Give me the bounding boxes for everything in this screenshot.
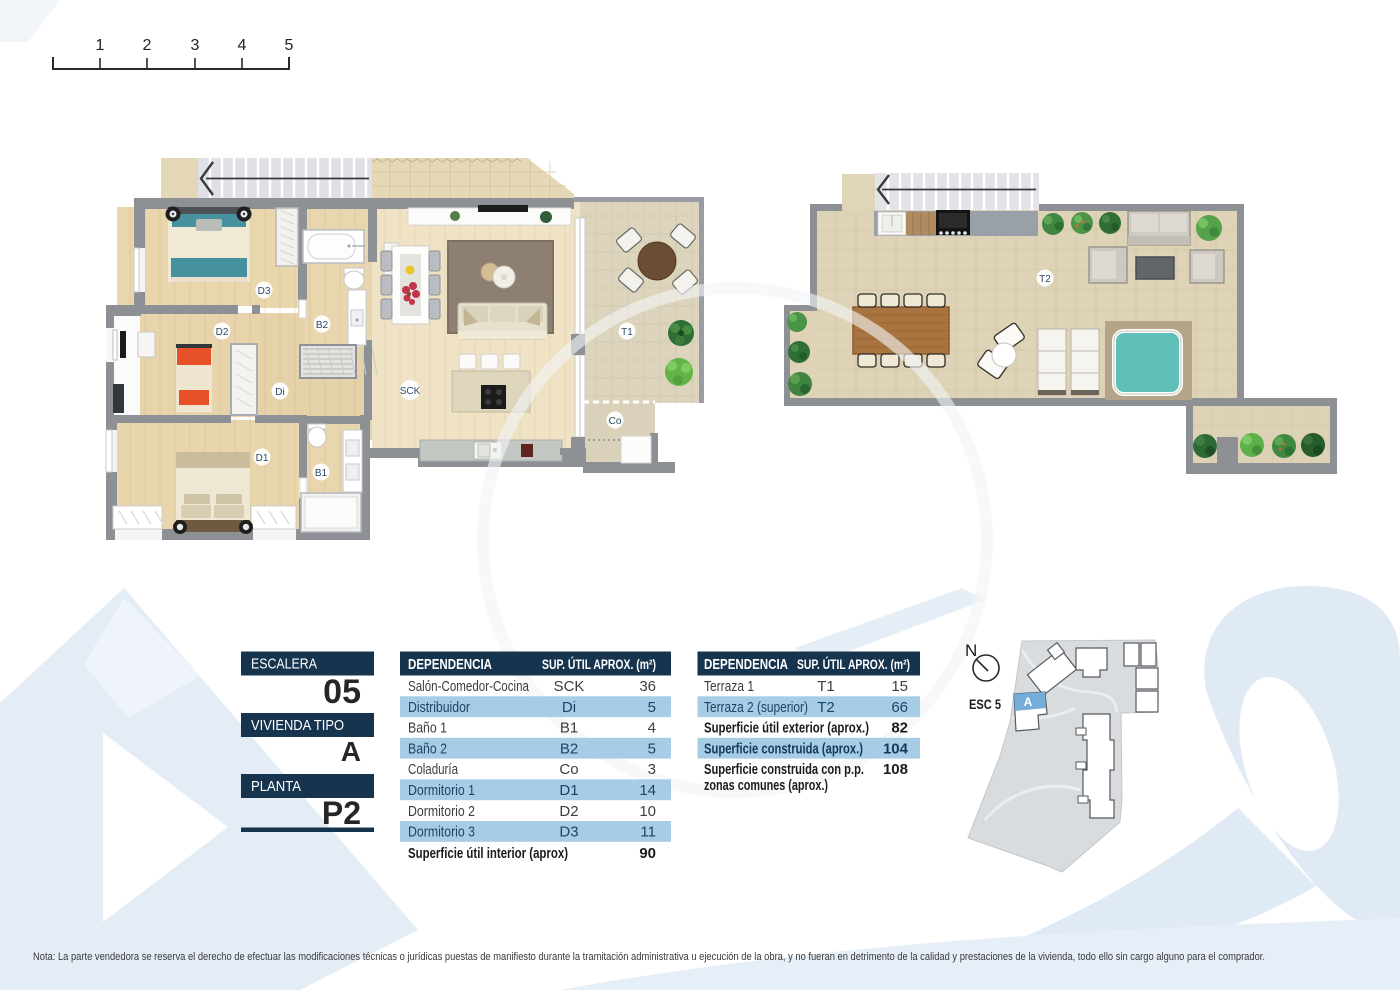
- svg-text:3: 3: [191, 37, 200, 54]
- svg-text:Terraza 2 (superior): Terraza 2 (superior): [704, 699, 808, 716]
- svg-text:4: 4: [648, 720, 656, 737]
- svg-text:Baño 1: Baño 1: [408, 720, 447, 737]
- svg-text:zonas comunes (aprox.): zonas comunes (aprox.): [704, 777, 828, 794]
- svg-text:Baño 2: Baño 2: [408, 741, 447, 758]
- svg-text:SUP. ÚTIL APROX. (m²): SUP. ÚTIL APROX. (m²): [797, 657, 910, 672]
- svg-text:5: 5: [648, 699, 656, 716]
- svg-text:Terraza 1: Terraza 1: [704, 678, 754, 695]
- svg-text:108: 108: [883, 761, 908, 778]
- svg-text:A: A: [341, 736, 361, 767]
- svg-text:N: N: [965, 641, 977, 660]
- svg-text:A: A: [1024, 695, 1033, 709]
- svg-text:36: 36: [639, 678, 656, 695]
- svg-text:Di: Di: [275, 387, 284, 398]
- svg-text:D1: D1: [559, 782, 578, 799]
- svg-text:Salón-Comedor-Cocina: Salón-Comedor-Cocina: [408, 678, 529, 695]
- svg-text:T2: T2: [817, 699, 835, 716]
- svg-text:4: 4: [238, 37, 247, 54]
- svg-text:Superficie útil interior (apro: Superficie útil interior (aprox): [408, 845, 568, 862]
- svg-text:5: 5: [285, 37, 294, 54]
- svg-text:Coladuría: Coladuría: [408, 761, 458, 778]
- svg-text:2: 2: [143, 37, 152, 54]
- svg-text:T1: T1: [817, 678, 835, 695]
- svg-text:B1: B1: [560, 720, 578, 737]
- svg-text:B2: B2: [316, 320, 329, 331]
- svg-text:05: 05: [323, 673, 361, 711]
- svg-text:90: 90: [639, 845, 656, 862]
- svg-text:PLANTA: PLANTA: [251, 779, 301, 795]
- svg-text:11: 11: [640, 824, 656, 841]
- svg-text:D3: D3: [559, 824, 578, 841]
- svg-text:Dormitorio 3: Dormitorio 3: [408, 824, 475, 841]
- svg-text:5: 5: [648, 741, 656, 758]
- svg-text:3: 3: [648, 761, 656, 778]
- svg-text:SCK: SCK: [400, 386, 421, 397]
- svg-text:15: 15: [891, 678, 908, 695]
- svg-text:T2: T2: [1039, 274, 1051, 285]
- svg-text:Distribuidor: Distribuidor: [408, 699, 470, 716]
- svg-text:1: 1: [96, 37, 105, 54]
- svg-text:D3: D3: [258, 286, 271, 297]
- svg-text:B2: B2: [560, 741, 578, 758]
- svg-text:DEPENDENCIA: DEPENDENCIA: [408, 657, 492, 673]
- svg-text:Co: Co: [609, 416, 622, 427]
- svg-text:P2: P2: [322, 795, 361, 831]
- svg-text:14: 14: [639, 782, 656, 799]
- svg-text:VIVIENDA TIPO: VIVIENDA TIPO: [251, 718, 344, 734]
- svg-text:Superficie construida con p.p.: Superficie construida con p.p.: [704, 761, 864, 778]
- svg-text:ESC 5: ESC 5: [969, 696, 1001, 712]
- svg-text:Nota: La parte vendedora se re: Nota: La parte vendedora se reserva el d…: [33, 951, 1265, 963]
- svg-text:D2: D2: [216, 327, 229, 338]
- svg-text:B1: B1: [315, 468, 328, 479]
- svg-text:10: 10: [639, 803, 656, 820]
- svg-text:T1: T1: [621, 327, 633, 338]
- svg-text:Di: Di: [562, 699, 576, 716]
- svg-text:104: 104: [883, 741, 909, 758]
- svg-text:DEPENDENCIA: DEPENDENCIA: [704, 657, 788, 673]
- svg-text:Co: Co: [559, 761, 578, 778]
- svg-text:66: 66: [891, 699, 908, 716]
- svg-text:D2: D2: [559, 803, 578, 820]
- svg-text:SCK: SCK: [554, 678, 585, 695]
- svg-text:82: 82: [891, 720, 908, 737]
- svg-text:SUP. ÚTIL APROX. (m²): SUP. ÚTIL APROX. (m²): [542, 657, 656, 672]
- svg-text:Superficie construida (aprox.): Superficie construida (aprox.): [704, 741, 863, 758]
- svg-text:Dormitorio 2: Dormitorio 2: [408, 803, 475, 820]
- svg-text:D1: D1: [256, 453, 269, 464]
- svg-text:Dormitorio 1: Dormitorio 1: [408, 782, 475, 799]
- svg-text:Superficie útil exterior (apro: Superficie útil exterior (aprox.): [704, 720, 869, 737]
- svg-text:ESCALERA: ESCALERA: [251, 657, 317, 673]
